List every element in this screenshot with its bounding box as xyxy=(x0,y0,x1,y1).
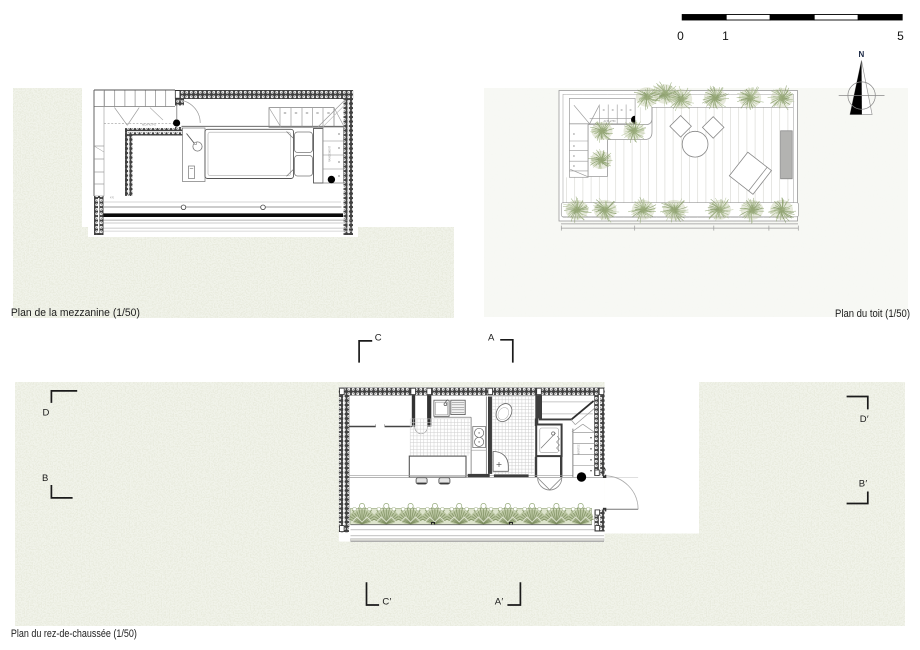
svg-text:D: D xyxy=(43,407,50,418)
svg-text:Plan du toit (1/50): Plan du toit (1/50) xyxy=(835,308,910,320)
svg-text:0: 0 xyxy=(677,29,684,43)
svg-text:Plan du rez-de-chaussée (1/50): Plan du rez-de-chaussée (1/50) xyxy=(11,628,137,640)
svg-text:5: 5 xyxy=(897,29,904,43)
svg-text:Plan de la mezzanine (1/50): Plan de la mezzanine (1/50) xyxy=(11,307,140,319)
svg-text:MONTEE: MONTEE xyxy=(578,444,581,455)
svg-text:C: C xyxy=(375,333,382,344)
svg-text:RANGEMENT: RANGEMENT xyxy=(329,146,332,162)
svg-text:B: B xyxy=(42,473,49,484)
svg-text:C′: C′ xyxy=(382,597,391,608)
svg-text:D′: D′ xyxy=(860,414,869,425)
svg-text:A′: A′ xyxy=(495,597,504,608)
svg-text:1: 1 xyxy=(722,29,729,43)
svg-text:470: 470 xyxy=(110,197,115,200)
svg-text:B′: B′ xyxy=(859,478,868,489)
svg-text:N: N xyxy=(859,50,865,59)
svg-text:A: A xyxy=(488,333,495,344)
svg-text:MCH 42 PG: MCH 42 PG xyxy=(142,122,156,126)
